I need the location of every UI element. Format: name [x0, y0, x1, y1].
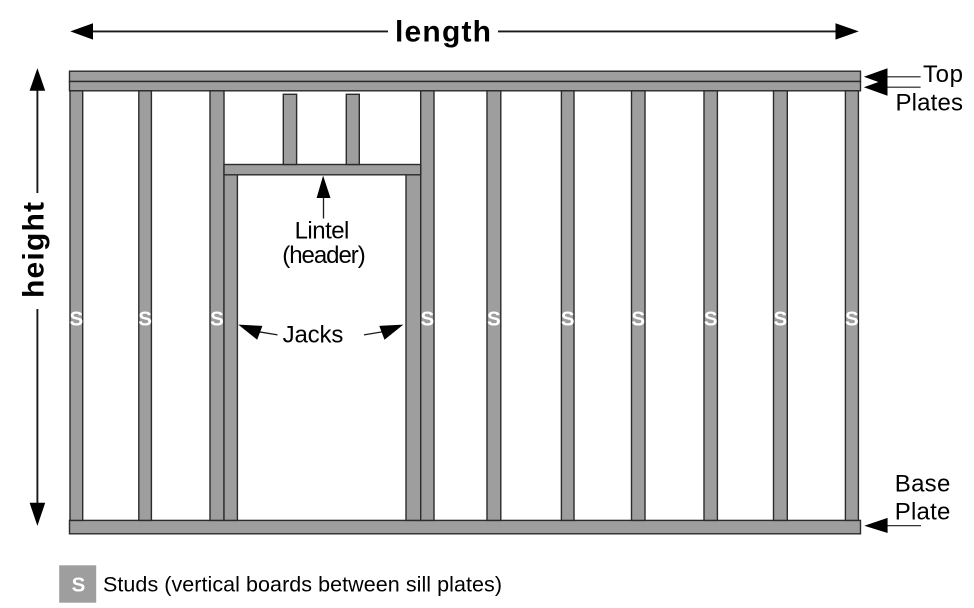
svg-text:(header): (header) — [282, 242, 366, 269]
svg-text:Plate: Plate — [895, 499, 951, 526]
svg-text:S: S — [774, 308, 788, 331]
svg-text:S: S — [561, 308, 575, 331]
svg-text:Plates: Plates — [896, 89, 964, 116]
svg-text:Base: Base — [895, 471, 951, 498]
svg-text:S: S — [487, 308, 501, 331]
svg-text:S: S — [704, 308, 718, 331]
svg-text:S: S — [72, 574, 86, 597]
svg-text:S: S — [420, 308, 434, 331]
svg-text:length: length — [395, 16, 491, 49]
svg-text:S: S — [845, 308, 859, 331]
svg-text:Top: Top — [923, 61, 963, 88]
svg-text:Lintel: Lintel — [295, 217, 350, 244]
svg-text:Jacks: Jacks — [283, 321, 344, 348]
svg-text:S: S — [70, 308, 84, 331]
svg-text:Studs (vertical boards between: Studs (vertical boards between sill plat… — [103, 573, 502, 597]
svg-text:S: S — [138, 308, 152, 331]
svg-text:S: S — [631, 308, 645, 331]
svg-text:S: S — [210, 308, 224, 331]
svg-text:height: height — [18, 202, 51, 298]
